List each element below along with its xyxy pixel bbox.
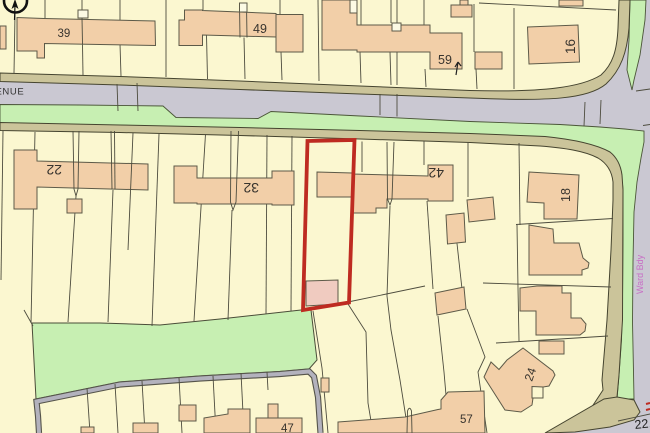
svg-text:22.: 22. (634, 416, 650, 432)
svg-text:16: 16 (563, 39, 578, 54)
svg-text:59: 59 (438, 53, 452, 67)
svg-text:49: 49 (253, 22, 267, 36)
svg-text:ENUE: ENUE (0, 87, 24, 98)
svg-text:22: 22 (46, 162, 62, 178)
svg-text:42: 42 (428, 165, 444, 181)
svg-text:32: 32 (243, 180, 259, 196)
svg-text:39: 39 (58, 28, 71, 40)
svg-text:57: 57 (460, 414, 473, 426)
svg-text:47: 47 (281, 423, 294, 433)
svg-text:Ward Bdy: Ward Bdy (635, 254, 645, 294)
svg-text:18: 18 (559, 188, 573, 202)
